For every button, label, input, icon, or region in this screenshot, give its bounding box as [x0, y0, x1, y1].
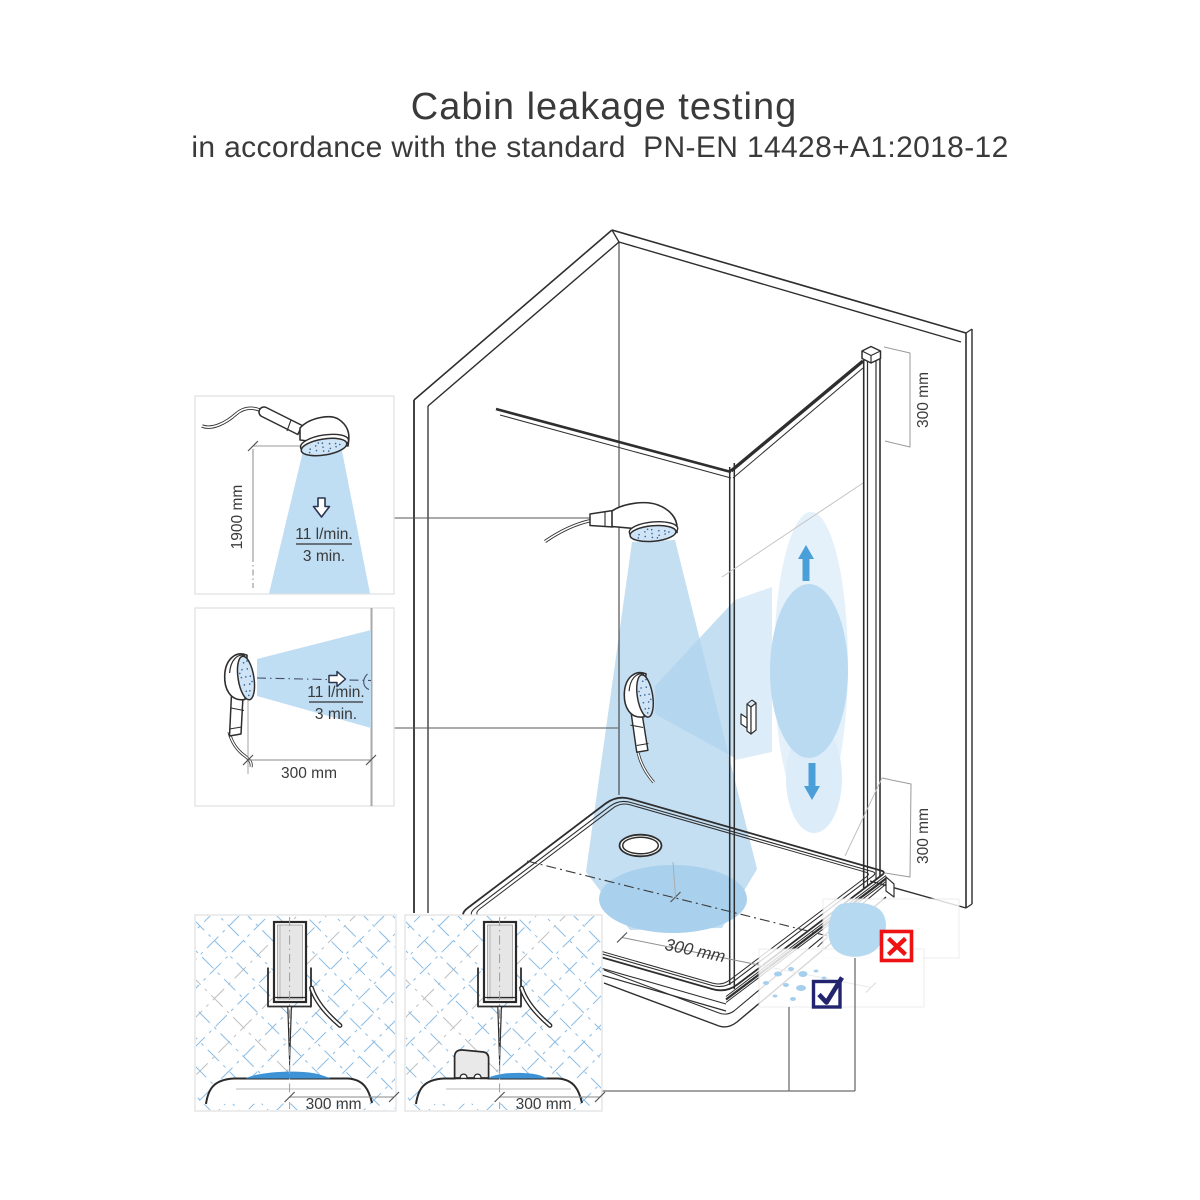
svg-text:300 mm: 300 mm: [281, 765, 337, 782]
svg-text:3 min.: 3 min.: [315, 706, 357, 723]
svg-text:Cabin leakage testing: Cabin leakage testing: [411, 86, 797, 128]
svg-text:300 mm: 300 mm: [915, 808, 932, 864]
svg-text:11 l/min.: 11 l/min.: [295, 526, 352, 543]
svg-text:11 l/min.: 11 l/min.: [307, 684, 364, 701]
svg-text:300 mm: 300 mm: [915, 372, 932, 428]
svg-text:1900 mm: 1900 mm: [229, 485, 246, 550]
svg-text:3 min.: 3 min.: [303, 548, 345, 565]
svg-text:300 mm: 300 mm: [306, 1096, 362, 1113]
svg-text:in accordance with the standar: in accordance with the standard PN-EN 14…: [191, 131, 1008, 164]
svg-text:300 mm: 300 mm: [516, 1096, 572, 1113]
